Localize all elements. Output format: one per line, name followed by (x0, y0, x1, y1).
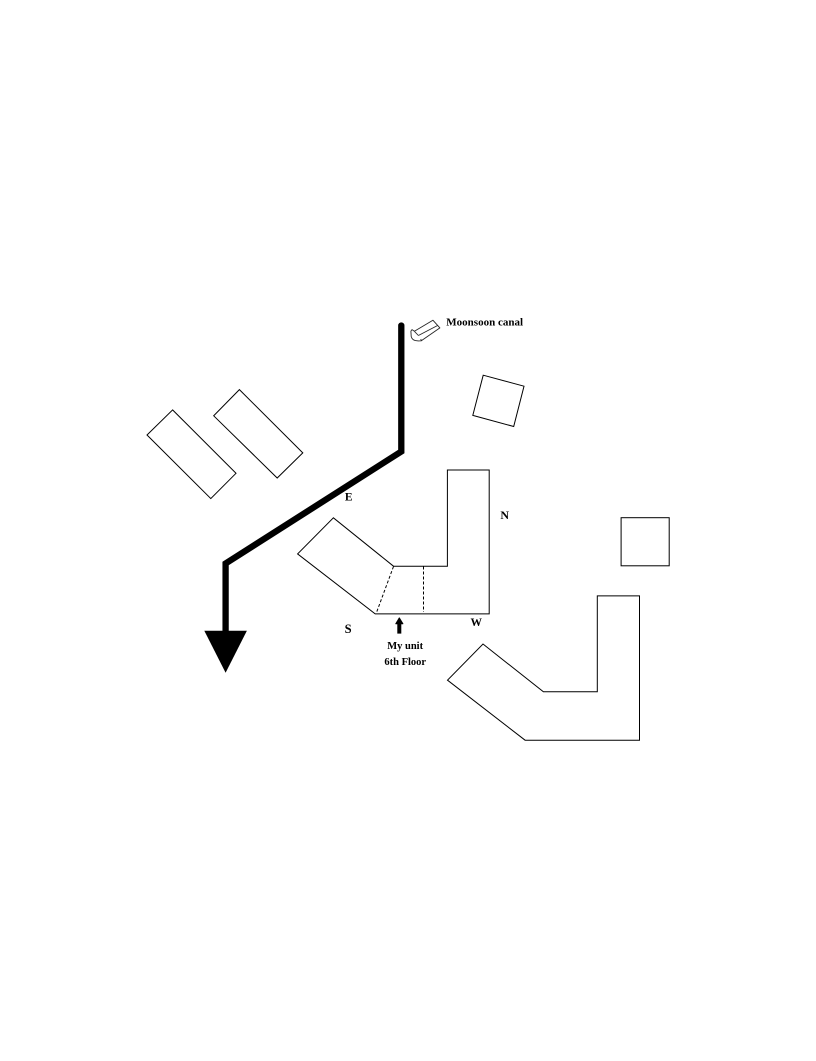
svg-text:N: N (500, 508, 509, 522)
svg-text:Moonsoon canal: Moonsoon canal (446, 316, 523, 328)
svg-text:6th Floor: 6th Floor (384, 657, 426, 668)
svg-text:W: W (471, 617, 483, 629)
svg-text:S: S (345, 622, 352, 636)
svg-text:My unit: My unit (387, 641, 423, 652)
svg-text:E: E (345, 491, 353, 503)
